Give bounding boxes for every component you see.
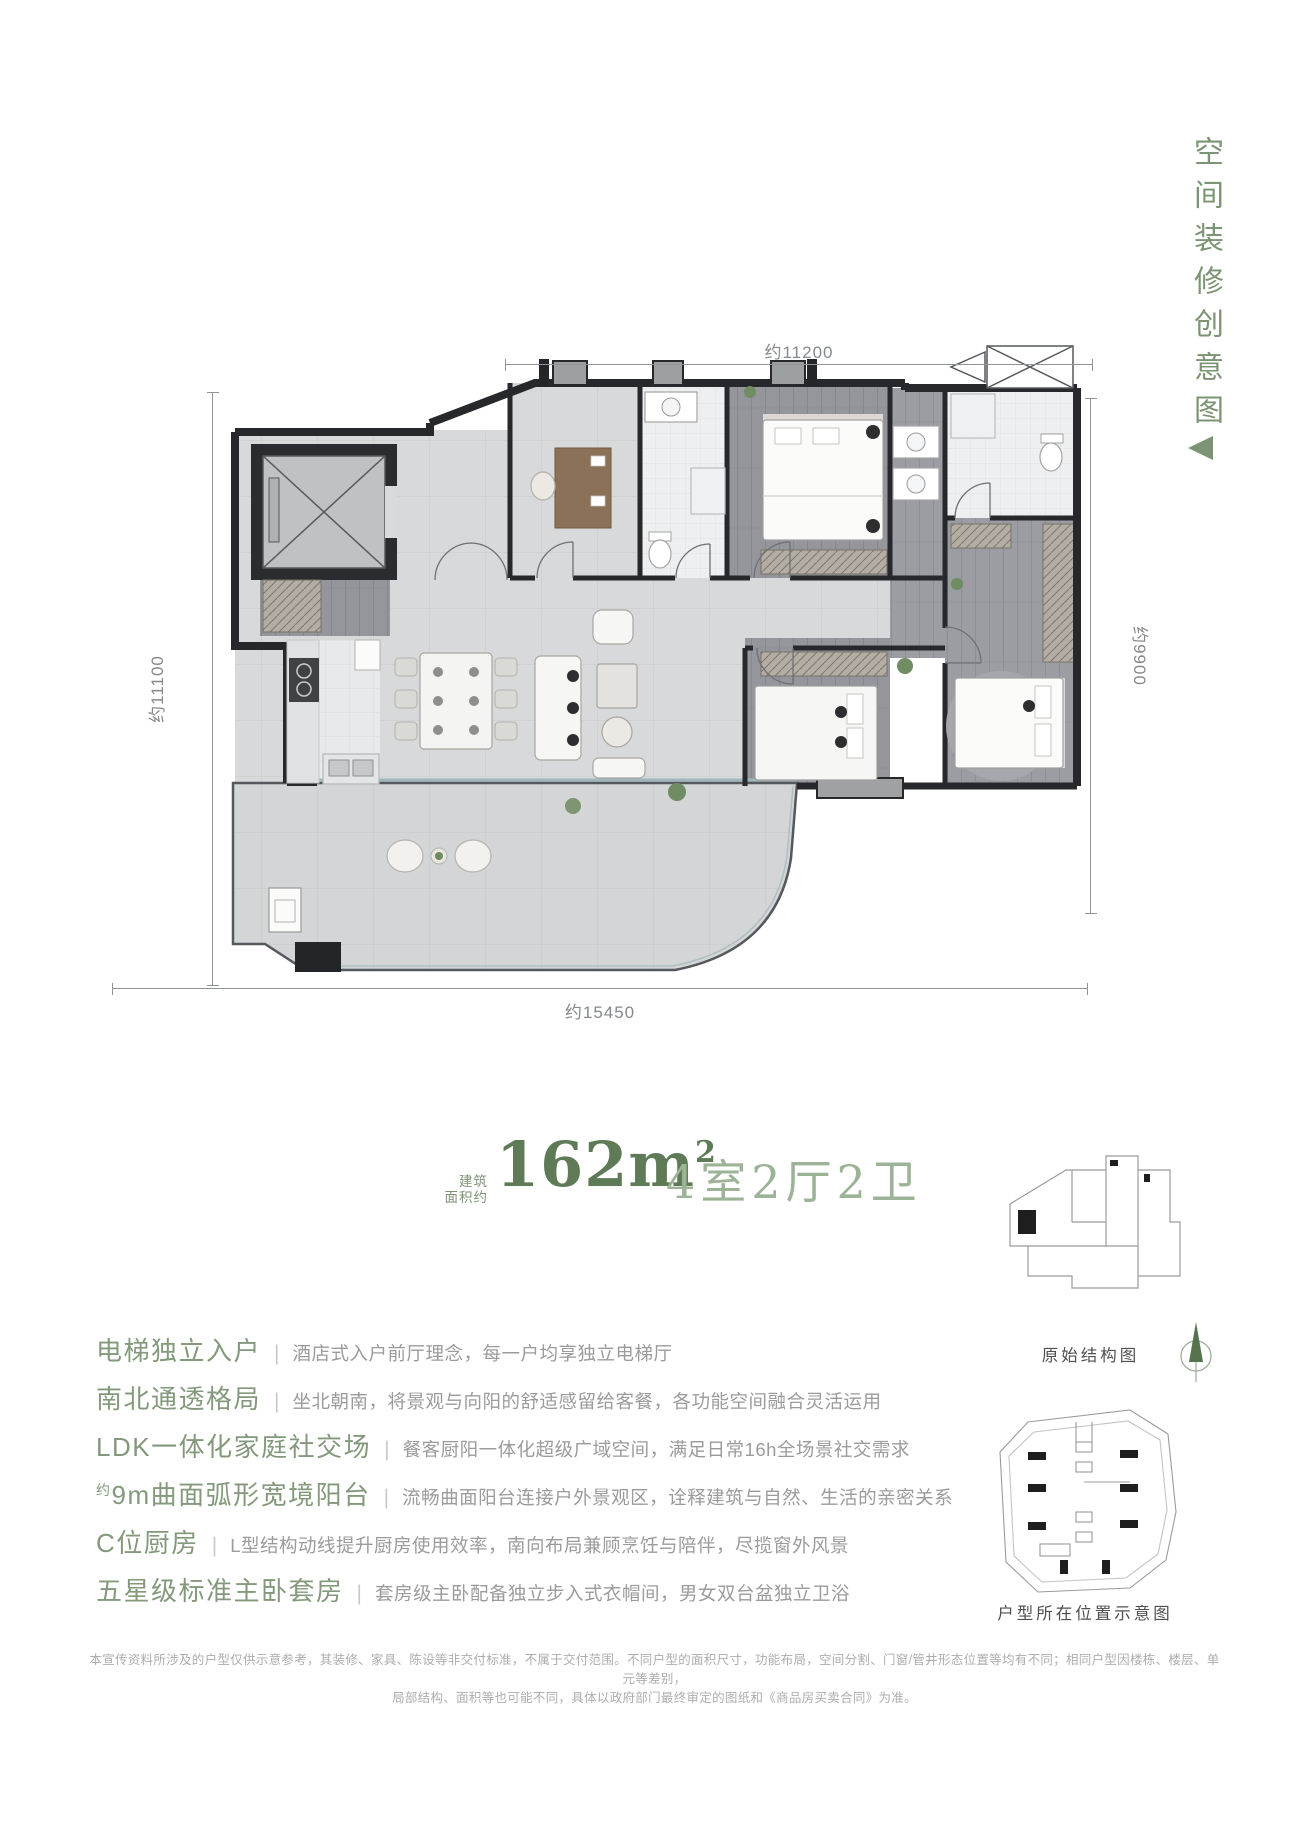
- divider: |: [212, 1534, 217, 1558]
- divider: |: [384, 1438, 389, 1462]
- bedroom-b-furniture: [755, 686, 877, 780]
- area-prefix-label: 建筑 面积约: [436, 1174, 488, 1206]
- feature-description: L型结构动线提升厨房使用效率，南向布局兼顾烹饪与陪伴，尽揽窗外风景: [230, 1532, 849, 1558]
- feature-heading-text: 五星级标准主卧套房: [96, 1576, 344, 1606]
- dimension-right: 约9900: [1090, 398, 1091, 914]
- dimension-left-label: 约11100: [143, 655, 168, 723]
- master-bedroom-furniture: [946, 671, 1065, 781]
- feature-row: 南北通透格局 | 坐北朝南，将景观与向阳的舒适感留给客餐，各功能空间融合灵活运用: [96, 1379, 953, 1416]
- location-diagram-label: 户型所在位置示意图: [955, 1600, 1215, 1624]
- feature-heading: 五星级标准主卧套房: [96, 1571, 344, 1608]
- feature-heading: C位厨房: [96, 1523, 199, 1560]
- divider: |: [274, 1342, 279, 1366]
- feature-heading-text: C位厨房: [96, 1528, 199, 1558]
- feature-description: 套房级主卧配备独立步入式衣帽间，男女双台盆独立卫浴: [375, 1580, 850, 1606]
- feature-heading-text: 南北通透格局: [96, 1384, 261, 1414]
- original-structure-label: 原始结构图: [988, 1342, 1193, 1366]
- feature-description: 流畅曲面阳台连接户外景观区，诠释建筑与自然、生活的亲密关系: [402, 1484, 953, 1510]
- feature-list: 电梯独立入户 | 酒店式入户前厅理念，每一户均享独立电梯厅 南北通透格局 | 坐…: [96, 1331, 953, 1619]
- ac-platform: [951, 346, 1073, 388]
- feature-description: 酒店式入户前厅理念，每一户均享独立电梯厅: [292, 1340, 672, 1366]
- bedroom-a-furniture: [763, 414, 883, 540]
- disclaimer: 本宣传资料所涉及的户型仅供示意参考，其装修、家具、陈设等非交付标准，不属于交付范…: [84, 1651, 1225, 1708]
- feature-heading: LDK一体化家庭社交场: [96, 1427, 371, 1464]
- disclaimer-line1: 本宣传资料所涉及的户型仅供示意参考，其装修、家具、陈设等非交付标准，不属于交付范…: [84, 1651, 1225, 1689]
- balcony: [233, 783, 797, 972]
- original-structure-diagram: [988, 1126, 1193, 1331]
- layout-summary: 4室2厅2卫: [666, 1146, 922, 1212]
- page-title-vertical: 空间装修创意图: [1183, 136, 1227, 437]
- feature-heading-text: LDK一体化家庭社交场: [96, 1432, 371, 1462]
- marketing-page: 空间装修创意图: [0, 0, 1309, 1833]
- feature-heading: 电梯独立入户: [96, 1331, 261, 1368]
- left-arrow-icon: [1188, 436, 1213, 460]
- dining-furniture: [395, 653, 517, 749]
- feature-heading: 约9m曲面弧形宽境阳台: [96, 1475, 371, 1512]
- feature-row: 五星级标准主卧套房 | 套房级主卧配备独立步入式衣帽间，男女双台盆独立卫浴: [96, 1571, 953, 1608]
- feature-description: 坐北朝南，将景观与向阳的舒适感留给客餐，各功能空间融合灵活运用: [292, 1388, 881, 1414]
- feature-prefix: 约: [96, 1482, 112, 1498]
- elevator: [251, 444, 397, 580]
- feature-heading-text: 电梯独立入户: [96, 1336, 261, 1366]
- dimension-top: 约11200: [505, 364, 1093, 365]
- divider: |: [274, 1390, 279, 1414]
- dimension-top-label: 约11200: [764, 338, 833, 363]
- compass-icon: [1172, 1318, 1220, 1390]
- feature-heading: 南北通透格局: [96, 1379, 261, 1416]
- dimension-right-label: 约9900: [1129, 626, 1154, 686]
- dimension-left: 约11100: [212, 392, 213, 986]
- location-diagram: [980, 1392, 1195, 1602]
- divider: |: [357, 1582, 362, 1606]
- floor-plan: [205, 328, 1100, 993]
- dimension-bottom: 约15450: [112, 988, 1088, 989]
- feature-description: 餐客厨阳一体化超级广域空间，满足日常16h全场景社交需求: [403, 1436, 910, 1462]
- feature-row: LDK一体化家庭社交场 | 餐客厨阳一体化超级广域空间，满足日常16h全场景社交…: [96, 1427, 953, 1464]
- feature-row: 约9m曲面弧形宽境阳台 | 流畅曲面阳台连接户外景观区，诠释建筑与自然、生活的亲…: [96, 1475, 953, 1512]
- disclaimer-line2: 局部结构、面积等也可能不同，具体以政府部门最终审定的图纸和《商品房买卖合同》为准…: [84, 1689, 1225, 1708]
- feature-row: C位厨房 | L型结构动线提升厨房使用效率，南向布局兼顾烹饪与陪伴，尽揽窗外风景: [96, 1523, 953, 1560]
- divider: |: [384, 1486, 389, 1510]
- feature-heading-text: 9m曲面弧形宽境阳台: [112, 1480, 371, 1510]
- dimension-bottom-label: 约15450: [565, 998, 635, 1023]
- feature-row: 电梯独立入户 | 酒店式入户前厅理念，每一户均享独立电梯厅: [96, 1331, 953, 1368]
